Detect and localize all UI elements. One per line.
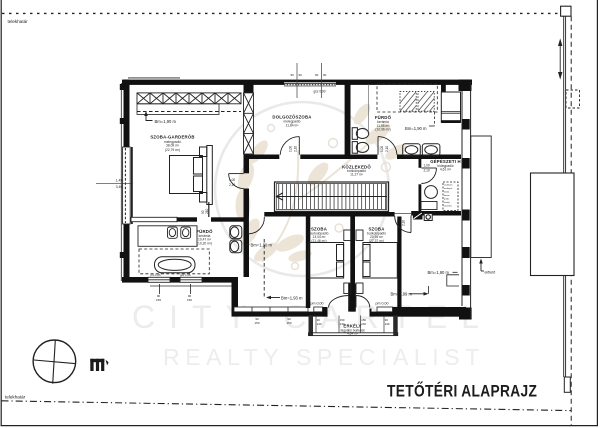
svg-text:2,10: 2,10 [294,146,298,152]
svg-text:4,64 m²: 4,64 m² [347,332,359,336]
svg-text:240: 240 [385,322,390,326]
svg-text:melegvíz: melegvíz [444,188,452,190]
svg-text:4,61 m²: 4,61 m² [440,168,452,172]
svg-text:2,10: 2,10 [229,183,235,187]
svg-text:3,40: 3,40 [116,185,122,189]
svg-text:1,00: 1,00 [424,164,430,168]
svg-text:Bm=1,90 m: Bm=1,90 m [251,242,273,247]
svg-text:1,00: 1,00 [397,220,401,226]
svg-text:gsz 0,90: gsz 0,90 [314,90,326,94]
svg-text:150: 150 [187,298,192,302]
svg-text:tartály: tartály [444,201,451,204]
svg-text:2,10: 2,10 [385,146,389,152]
svg-text:előtető: előtető [485,271,496,275]
svg-text:1,00: 1,00 [380,146,384,152]
svg-text:1,49: 1,49 [116,179,122,183]
svg-text:szellőzés: szellőzés [444,185,453,187]
svg-text:pm 0,00: pm 0,00 [311,302,324,306]
svg-text:240: 240 [317,322,322,326]
svg-text:240: 240 [361,322,366,326]
svg-text:pm 0,00: pm 0,00 [376,302,389,306]
svg-text:telekhatár: telekhatár [8,19,29,24]
svg-text:tároló: tároló [444,191,450,194]
svg-text:90: 90 [291,73,295,77]
svg-text:REALTY SPECIALIST: REALTY SPECIALIST [163,344,485,370]
svg-text:Bm=1,90 m: Bm=1,90 m [155,119,177,124]
svg-text:(10,96 m²): (10,96 m²) [375,128,390,132]
svg-text:Bm=1,90 m: Bm=1,90 m [428,270,450,275]
svg-text:telekhatár: telekhatár [5,395,26,400]
svg-text:11,27 m²: 11,27 m² [350,173,364,177]
svg-text:(22,79 m²): (22,79 m²) [165,148,180,152]
svg-text:(10,20 m²): (10,20 m²) [197,241,212,245]
svg-text:210: 210 [205,208,209,214]
svg-text:1,00: 1,00 [229,178,235,182]
svg-text:vezérlés: vezérlés [444,205,452,208]
svg-text:Bm=1,93 m: Bm=1,93 m [281,296,303,301]
svg-text:90: 90 [315,73,319,77]
svg-text:Bm=1,90 m: Bm=1,90 m [405,126,427,131]
svg-text:2,10: 2,10 [424,169,430,173]
svg-text:TETŐTÉRI ALAPRAJZ: TETŐTÉRI ALAPRAJZ [387,381,537,401]
svg-text:Bm=1,99 m: Bm=1,99 m [391,291,413,296]
svg-text:150: 150 [156,298,161,302]
svg-text:kazán: kazán [444,195,450,197]
svg-text:SZOBA-GARDERÓB: SZOBA-GARDERÓB [150,135,194,140]
svg-text:150: 150 [286,321,291,325]
svg-text:11,84 m²: 11,84 m² [286,123,300,127]
svg-text:90: 90 [323,73,327,77]
svg-text:1,00: 1,00 [289,146,293,152]
svg-text:90: 90 [299,73,303,77]
svg-text:(27,37 m²): (27,37 m²) [369,239,384,243]
svg-text:2,10: 2,10 [402,220,406,226]
svg-text:150: 150 [254,321,259,325]
svg-text:(21,46 m²): (21,46 m²) [311,239,326,243]
svg-text:puffer: puffer [444,198,450,201]
